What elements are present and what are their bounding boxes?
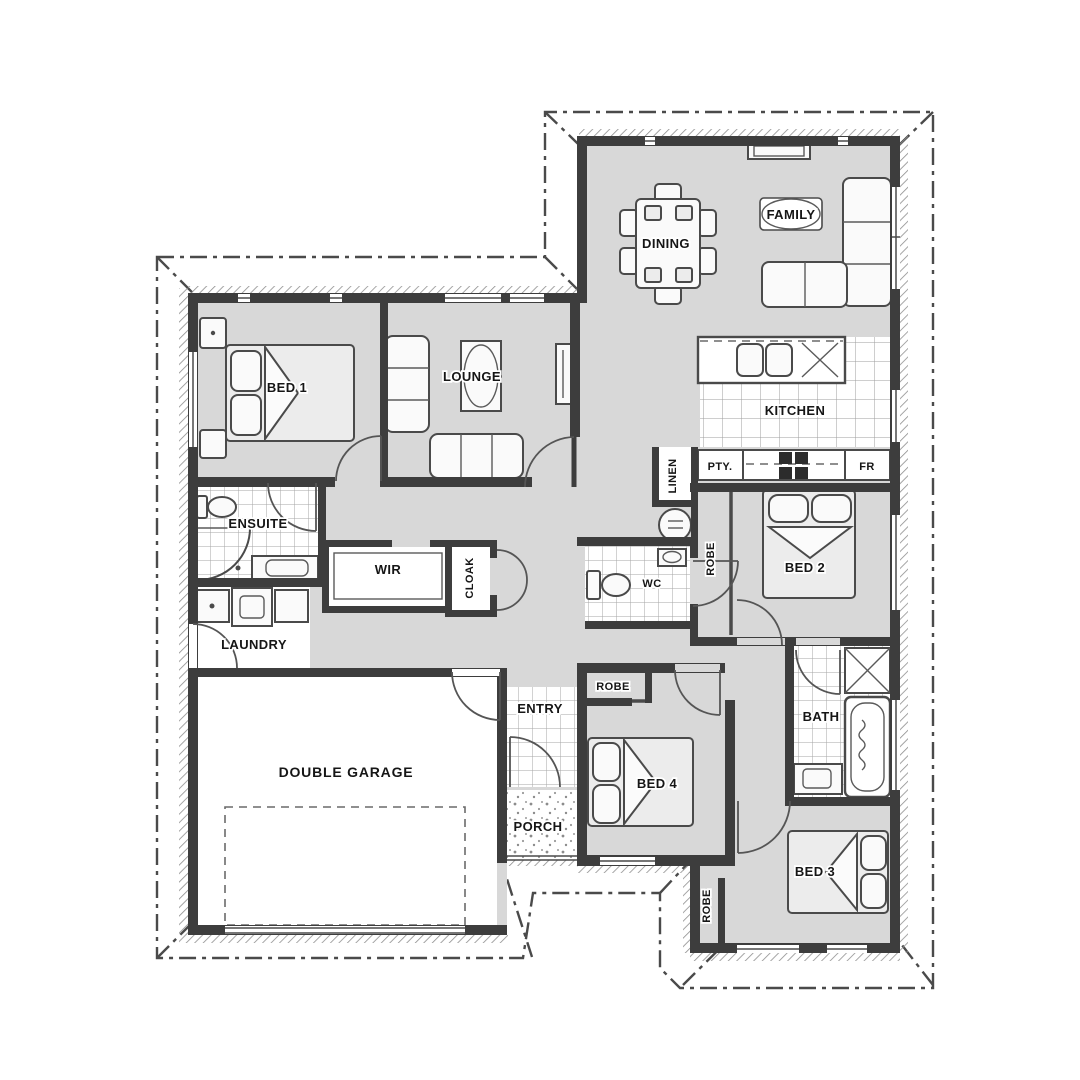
label-robe-bed2: ROBE	[705, 542, 717, 575]
linen-hws-symbols	[659, 509, 691, 541]
washer-symbol	[275, 590, 308, 622]
door-gap-laundry-left	[189, 624, 197, 668]
laundry-furniture-symbols	[196, 588, 308, 626]
label-laundry: LAUNDRY	[221, 637, 287, 652]
label-robe-bed3: ROBE	[701, 889, 713, 922]
label-kitchen: KITCHEN	[765, 403, 826, 418]
label-garage: DOUBLE GARAGE	[279, 764, 414, 780]
window-bed4-bottom	[600, 857, 655, 865]
toilet-symbol	[197, 496, 207, 518]
label-linen: LINEN	[667, 459, 679, 494]
label-pantry: PTY.	[708, 461, 733, 473]
label-entry: ENTRY	[517, 701, 563, 716]
garage-door-opening	[225, 926, 465, 934]
cooktop-symbol	[779, 452, 792, 464]
label-ensuite: ENSUITE	[228, 516, 287, 531]
label-fridge: FR	[859, 461, 874, 473]
label-bed1: BED 1	[267, 380, 307, 395]
kitchen-island-symbols	[698, 337, 845, 383]
sink-symbol	[737, 344, 763, 376]
laundry-tub-symbol	[232, 588, 272, 626]
label-bath: BATH	[803, 709, 840, 724]
floor-plan-canvas: BED 1 LOUNGE DINING FAMILY KITCHEN PTY. …	[0, 0, 1080, 1080]
label-bed2: BED 2	[785, 560, 825, 575]
label-wc: WC	[642, 578, 661, 590]
label-dining: DINING	[642, 236, 690, 251]
toilet-symbol	[587, 571, 600, 599]
label-family: FAMILY	[767, 207, 816, 222]
label-robe-bed4: ROBE	[596, 681, 629, 693]
label-lounge: LOUNGE	[443, 369, 501, 384]
hot-water-unit-symbol	[659, 509, 691, 541]
label-cloak: CLOAK	[464, 557, 476, 598]
label-bed4: BED 4	[637, 776, 678, 791]
window-bed1-left	[189, 352, 197, 447]
label-porch: PORCH	[514, 819, 563, 834]
label-wir: WIR	[375, 562, 402, 577]
label-bed3: BED 3	[795, 864, 835, 879]
garage-floor	[198, 677, 497, 925]
floor-plan-drawing: BED 1 LOUNGE DINING FAMILY KITCHEN PTY. …	[0, 0, 1080, 1080]
